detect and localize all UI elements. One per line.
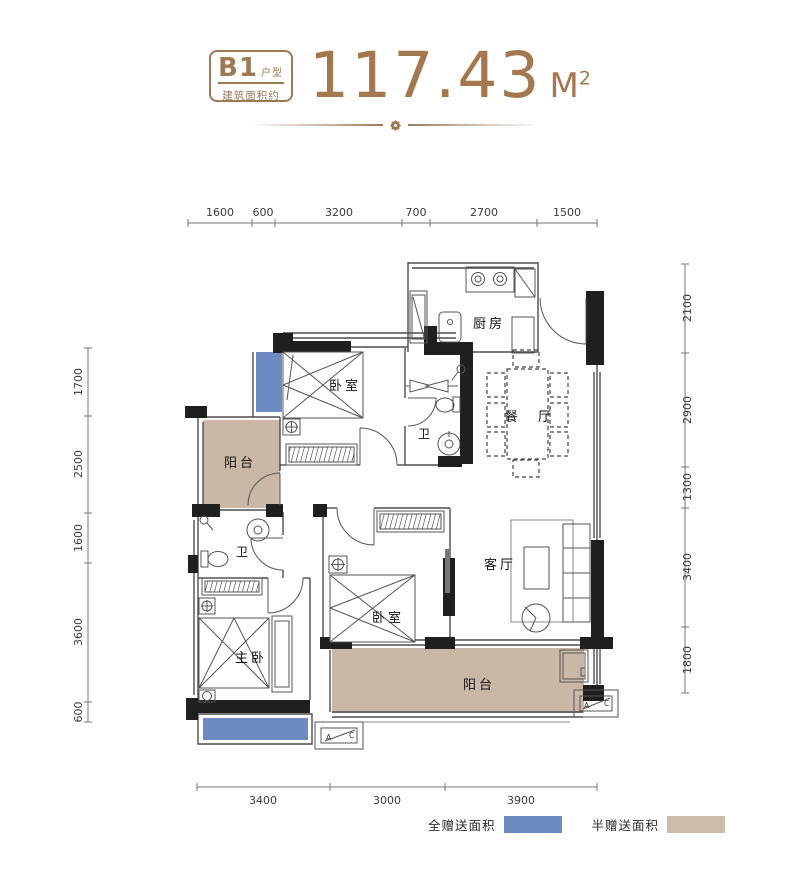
gift-full-area-bedroom-bay [256, 352, 282, 412]
room-label-living: 客厅 [484, 557, 516, 573]
bath-bottom-door [251, 538, 283, 570]
legend-half-swatch [667, 816, 725, 833]
room-label-bedroom-bottom: 卧室 [372, 610, 404, 626]
legend-half-label: 半赠送面积 [592, 815, 660, 834]
dim-bottom-1: 3000 [373, 794, 401, 807]
room-label-bath-top: 卫 [418, 427, 430, 441]
dim-right-3: 3400 [681, 553, 694, 581]
ac-bay-left [315, 722, 363, 749]
dim-left-1: 2500 [72, 450, 85, 478]
ac-left-label-c: C [349, 731, 354, 740]
living-room-furniture [445, 520, 590, 632]
room-label-kitchen: 厨房 [473, 316, 505, 332]
bath-top-door [408, 398, 436, 426]
dim-top-4: 2700 [470, 206, 498, 219]
legend: 全赠送面积 半赠送面积 [428, 815, 725, 834]
room-label-bath-bottom: 卫 [236, 545, 248, 559]
dim-left-2: 1600 [72, 524, 85, 552]
dim-top-5: 1500 [553, 206, 581, 219]
gift-full-area-master-bay [203, 718, 308, 740]
bedroom-top-door [360, 428, 397, 465]
bedroom-bottom-door [337, 508, 374, 545]
dim-bottom-0: 3400 [249, 794, 277, 807]
dim-right-0: 2100 [681, 294, 694, 322]
room-label-balcony-bottom: 阳台 [463, 678, 495, 693]
legend-full-swatch [504, 816, 562, 833]
legend-item-half-gift: 半赠送面积 [592, 815, 726, 834]
master-door [268, 578, 303, 613]
dim-top-3: 700 [406, 206, 427, 219]
room-label-master-bedroom: 主卧 [235, 651, 267, 666]
dim-top-2: 3200 [325, 206, 353, 219]
gift-half-area-balcony-bottom [332, 648, 584, 713]
dim-bottom-2: 3900 [507, 794, 535, 807]
bedroom-top-furniture [283, 352, 363, 465]
master-bedroom-furniture [199, 578, 292, 702]
legend-full-label: 全赠送面积 [428, 815, 496, 834]
legend-item-full-gift: 全赠送面积 [428, 815, 562, 834]
dim-top-1: 600 [253, 206, 274, 219]
dim-right-4: 1800 [681, 646, 694, 674]
dim-top-0: 1600 [206, 206, 234, 219]
entry-door [540, 298, 586, 344]
floor-plan: A C A C 卧室 卫 厨房 餐 厅 阳台 卫 主卧 卧室 客厅 阳台 160… [0, 0, 800, 869]
ac-left-label-a: A [326, 733, 332, 742]
ac-right-label-c: C [604, 699, 609, 708]
room-label-bedroom-top: 卧室 [329, 378, 361, 394]
ac-right-label-a: A [584, 701, 590, 710]
room-label-balcony-left: 阳台 [224, 456, 256, 471]
dim-right-1: 2900 [681, 396, 694, 424]
bath-top-fixtures [405, 365, 465, 455]
room-label-dining: 餐 厅 [505, 409, 559, 425]
dim-left-3: 3600 [72, 618, 85, 646]
dim-left-4: 600 [72, 702, 85, 723]
dim-left-0: 1700 [72, 368, 85, 396]
dim-right-2: 1300 [681, 473, 694, 501]
